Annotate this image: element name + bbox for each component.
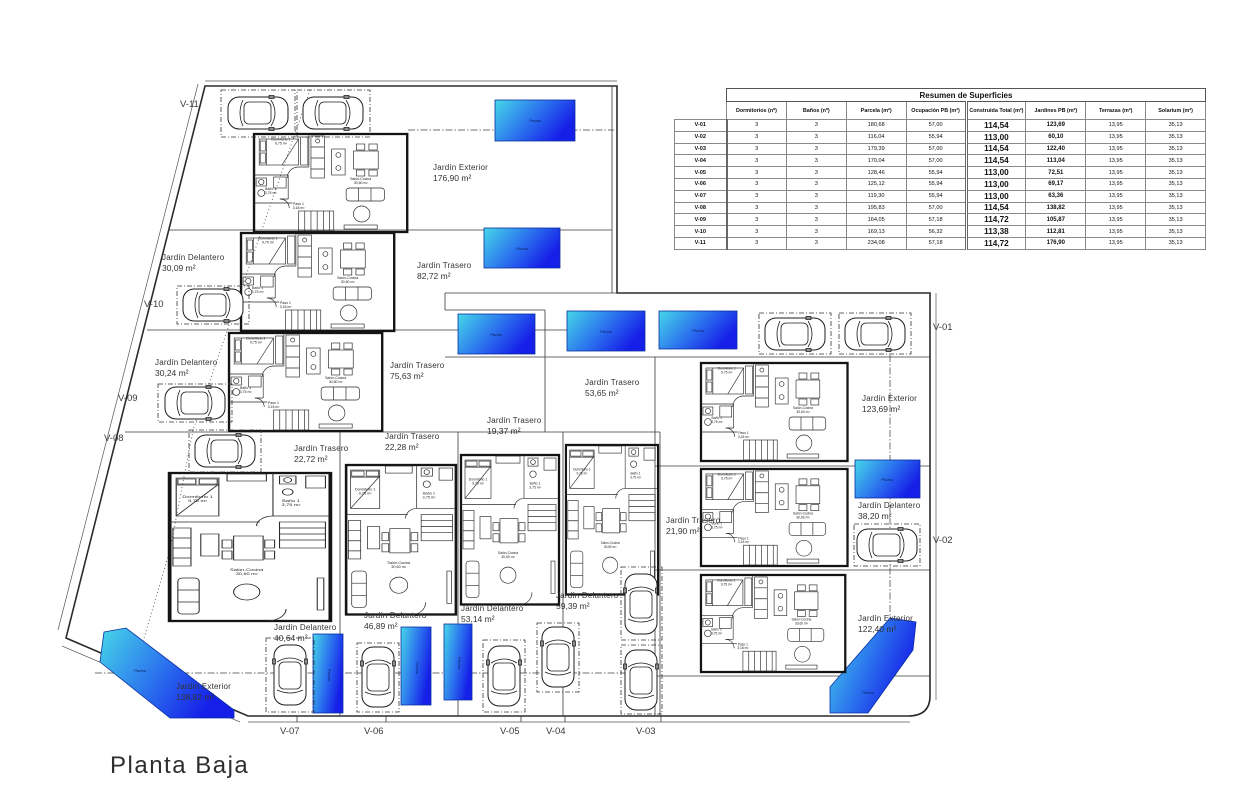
cell-ocupacion: 57,00 <box>906 120 966 132</box>
cell-terrazas: 13,95 <box>1086 143 1146 155</box>
garden-name: Jardín Delantero <box>364 611 427 620</box>
garden-name: Jardín Exterior <box>862 394 917 403</box>
cell-jardines: 176,90 <box>1026 237 1086 249</box>
garden-name: Jardín Delantero <box>461 604 524 613</box>
garden-name: Jardín Trasero <box>417 261 472 270</box>
cell-jardines: 69,17 <box>1026 178 1086 190</box>
cell-unit-id: V-09 <box>675 214 727 226</box>
cell-ocupacion: 55,94 <box>906 178 966 190</box>
garden-area: 75,63 m² <box>390 371 424 381</box>
cell-parcela: 195,83 <box>846 202 906 214</box>
cell-solarium: 35,13 <box>1146 237 1206 249</box>
cell-ocupacion: 57,00 <box>906 143 966 155</box>
garden-name: Jardín Exterior <box>858 614 913 623</box>
table-row: V-04 3 3 170,04 57,00 114,54 113,04 13,9… <box>675 155 1206 167</box>
cell-ocupacion: 56,32 <box>906 226 966 238</box>
pool-label: Piscina <box>516 247 528 251</box>
unit-label-v08: V-08 <box>104 433 124 444</box>
cell-dormitorios: 3 <box>727 214 787 226</box>
pool-label: Piscina <box>881 478 893 482</box>
garden-area: 53,65 m² <box>585 388 619 398</box>
cell-ocupacion: 55,94 <box>906 190 966 202</box>
cell-banos: 3 <box>786 120 846 132</box>
table-corner <box>675 102 727 120</box>
garden-name: Jardín Trasero <box>585 378 640 387</box>
table-row: V-11 3 3 234,08 57,18 114,72 176,90 13,9… <box>675 237 1206 249</box>
unit-label-v07: V-07 <box>280 726 300 737</box>
table-body: V-01 3 3 180,68 57,00 114,54 123,69 13,9… <box>675 120 1206 250</box>
cell-terrazas: 13,95 <box>1086 131 1146 143</box>
table-row: V-08 3 3 195,83 57,00 114,54 138,82 13,9… <box>675 202 1206 214</box>
garden-name: Jardín Trasero <box>294 444 349 453</box>
house-v02 <box>701 469 848 566</box>
unit-label-v04: V-04 <box>546 726 566 737</box>
cell-unit-id: V-02 <box>675 131 727 143</box>
garden-area: 82,72 m² <box>417 271 451 281</box>
cell-ocupacion: 57,00 <box>906 202 966 214</box>
cell-terrazas: 13,95 <box>1086 214 1146 226</box>
cell-jardines: 72,51 <box>1026 167 1086 179</box>
garden-area: 46,89 m² <box>364 621 398 631</box>
pool-label: Piscina <box>134 669 146 673</box>
garden-name: Jardín Delantero <box>162 253 225 262</box>
garden-name: Jardín Delantero <box>155 358 218 367</box>
table-row: V-06 3 3 125,12 55,94 113,00 69,17 13,95… <box>675 178 1206 190</box>
cell-ocupacion: 57,18 <box>906 214 966 226</box>
cell-banos: 3 <box>786 131 846 143</box>
cell-terrazas: 13,95 <box>1086 190 1146 202</box>
cell-solarium: 35,13 <box>1146 167 1206 179</box>
table-row: V-03 3 3 179,39 57,00 114,54 122,40 13,9… <box>675 143 1206 155</box>
col-jardines: Jardines PB (m²) <box>1026 102 1086 120</box>
cell-parcela: 128,46 <box>846 167 906 179</box>
table-row: V-10 3 3 169,13 56,32 113,38 112,81 13,9… <box>675 226 1206 238</box>
cell-banos: 3 <box>786 202 846 214</box>
pool-label: Piscina <box>529 119 541 123</box>
cell-jardines: 113,04 <box>1026 155 1086 167</box>
cell-terrazas: 13,95 <box>1086 120 1146 132</box>
garden-area: 59,39 m² <box>556 601 590 611</box>
floor-plan-page: Dormitorio 1 9,75 m² Baño 1 3,75 m² Paso… <box>0 0 1246 812</box>
cell-banos: 3 <box>786 167 846 179</box>
table-header-row: Dormitorios (nº) Baños (nº) Parcela (m²)… <box>675 102 1206 120</box>
garden-area: 176,90 m² <box>433 173 471 183</box>
house-v11 <box>254 134 407 232</box>
cell-dormitorios: 3 <box>727 120 787 132</box>
cell-unit-id: V-03 <box>675 143 727 155</box>
house-v05 <box>461 455 559 604</box>
garden-area: 53,14 m² <box>461 614 495 624</box>
cell-jardines: 105,87 <box>1026 214 1086 226</box>
page-title: Planta Baja <box>110 752 249 780</box>
cell-unit-id: V-05 <box>675 167 727 179</box>
house-v09 <box>229 333 382 431</box>
cell-ocupacion: 55,94 <box>906 131 966 143</box>
garden-area: 22,72 m² <box>294 454 328 464</box>
col-banos: Baños (nº) <box>786 102 846 120</box>
garden-area: 138,82 m² <box>176 692 214 702</box>
surface-summary-table: Resumen de Superficies Dormitorios (nº) … <box>674 88 1206 250</box>
cell-jardines: 123,69 <box>1026 120 1086 132</box>
cell-parcela: 179,39 <box>846 143 906 155</box>
garden-name: Jardín Trasero <box>385 432 440 441</box>
cell-ocupacion: 55,94 <box>906 167 966 179</box>
col-dormitorios: Dormitorios (nº) <box>727 102 787 120</box>
cell-banos: 3 <box>786 237 846 249</box>
table-corner <box>675 89 727 102</box>
cell-unit-id: V-10 <box>675 226 727 238</box>
cell-jardines: 60,10 <box>1026 131 1086 143</box>
house-v06 <box>346 465 456 614</box>
house-v07 <box>170 473 331 621</box>
cell-construida: 114,72 <box>966 214 1026 226</box>
cell-terrazas: 13,95 <box>1086 178 1146 190</box>
pool-label: Piscina <box>415 662 419 674</box>
pool-label: Piscina <box>457 657 461 669</box>
cell-jardines: 138,82 <box>1026 202 1086 214</box>
cell-parcela: 169,13 <box>846 226 906 238</box>
cell-solarium: 35,13 <box>1146 190 1206 202</box>
cell-terrazas: 13,95 <box>1086 226 1146 238</box>
cell-ocupacion: 57,18 <box>906 237 966 249</box>
cell-dormitorios: 3 <box>727 155 787 167</box>
cell-solarium: 35,13 <box>1146 120 1206 132</box>
cell-dormitorios: 3 <box>727 167 787 179</box>
cell-banos: 3 <box>786 155 846 167</box>
table-row: V-05 3 3 128,46 55,94 113,00 72,51 13,95… <box>675 167 1206 179</box>
col-ocupacion: Ocupación PB (m²) <box>906 102 966 120</box>
cell-unit-id: V-06 <box>675 178 727 190</box>
cell-solarium: 35,13 <box>1146 202 1206 214</box>
col-construida: Construida Total (m²) <box>966 102 1026 120</box>
cell-dormitorios: 3 <box>727 190 787 202</box>
cell-banos: 3 <box>786 190 846 202</box>
cell-parcela: 119,30 <box>846 190 906 202</box>
garden-area: 21,90 m² <box>666 526 700 536</box>
cell-terrazas: 13,95 <box>1086 167 1146 179</box>
house-v03 <box>701 575 845 672</box>
cell-banos: 3 <box>786 226 846 238</box>
cell-jardines: 112,81 <box>1026 226 1086 238</box>
cell-solarium: 35,13 <box>1146 131 1206 143</box>
garden-name: Jardín Delantero <box>858 501 921 510</box>
table-row: V-01 3 3 180,68 57,00 114,54 123,69 13,9… <box>675 120 1206 132</box>
cell-terrazas: 13,95 <box>1086 155 1146 167</box>
cell-dormitorios: 3 <box>727 178 787 190</box>
garden-name: Jardín Exterior <box>433 163 488 172</box>
cell-jardines: 63,36 <box>1026 190 1086 202</box>
pool-label: Piscina <box>327 669 331 681</box>
cell-banos: 3 <box>786 178 846 190</box>
unit-label-v06: V-06 <box>364 726 384 737</box>
unit-label-v09: V-09 <box>118 393 138 404</box>
house-v04 <box>566 445 658 594</box>
pool-label: Piscina <box>600 330 612 334</box>
cell-unit-id: V-08 <box>675 202 727 214</box>
garden-name: Jardín Trasero <box>666 516 721 525</box>
cell-construida: 114,54 <box>966 155 1026 167</box>
garden-area: 30,24 m² <box>155 368 189 378</box>
cell-solarium: 35,13 <box>1146 143 1206 155</box>
cell-jardines: 122,40 <box>1026 143 1086 155</box>
garden-name: Jardín Delantero <box>274 623 337 632</box>
unit-label-v02: V-02 <box>933 535 953 546</box>
cell-banos: 3 <box>786 214 846 226</box>
cell-terrazas: 13,95 <box>1086 237 1146 249</box>
cell-dormitorios: 3 <box>727 131 787 143</box>
cell-construida: 113,00 <box>966 190 1026 202</box>
cell-parcela: 164,05 <box>846 214 906 226</box>
garden-area: 19,37 m² <box>487 426 521 436</box>
cell-unit-id: V-11 <box>675 237 727 249</box>
garden-name: Jardín Delantero <box>556 591 619 600</box>
pool-label: Piscina <box>490 333 502 337</box>
unit-label-v05: V-05 <box>500 726 520 737</box>
garden-name: Jardín Trasero <box>390 361 445 370</box>
pool-label: Piscina <box>692 329 704 333</box>
cell-dormitorios: 3 <box>727 226 787 238</box>
col-solarium: Solarium (m²) <box>1146 102 1206 120</box>
cell-ocupacion: 57,00 <box>906 155 966 167</box>
cell-construida: 114,54 <box>966 143 1026 155</box>
pool-label: Piscina <box>862 691 874 695</box>
cell-solarium: 35,13 <box>1146 226 1206 238</box>
cell-dormitorios: 3 <box>727 143 787 155</box>
cell-unit-id: V-01 <box>675 120 727 132</box>
garden-area: 122,40 m² <box>858 624 896 634</box>
house-v10 <box>241 233 394 331</box>
cell-parcela: 234,08 <box>846 237 906 249</box>
unit-label-v11: V-11 <box>180 99 199 110</box>
garden-area: 40,64 m² <box>274 633 308 643</box>
table-row: V-09 3 3 164,05 57,18 114,72 105,87 13,9… <box>675 214 1206 226</box>
cell-parcela: 170,04 <box>846 155 906 167</box>
cell-construida: 113,00 <box>966 178 1026 190</box>
cell-construida: 114,72 <box>966 237 1026 249</box>
garden-area: 123,69 m² <box>862 404 900 414</box>
cell-solarium: 35,13 <box>1146 214 1206 226</box>
unit-label-v03: V-03 <box>636 726 656 737</box>
cell-solarium: 35,13 <box>1146 178 1206 190</box>
cell-parcela: 125,12 <box>846 178 906 190</box>
col-terrazas: Terrazas (m²) <box>1086 102 1146 120</box>
unit-label-v10: V-10 <box>144 299 164 310</box>
cell-solarium: 35,13 <box>1146 155 1206 167</box>
cell-dormitorios: 3 <box>727 237 787 249</box>
unit-label-v01: V-01 <box>933 322 953 333</box>
cell-construida: 114,54 <box>966 202 1026 214</box>
col-parcela: Parcela (m²) <box>846 102 906 120</box>
cell-unit-id: V-07 <box>675 190 727 202</box>
garden-name: Jardín Trasero <box>487 416 542 425</box>
cell-dormitorios: 3 <box>727 202 787 214</box>
cell-construida: 114,54 <box>966 120 1026 132</box>
table-title-row: Resumen de Superficies <box>675 89 1206 102</box>
table-row: V-02 3 3 116,04 55,94 113,00 60,10 13,95… <box>675 131 1206 143</box>
garden-area: 38,20 m² <box>858 511 892 521</box>
cell-construida: 113,00 <box>966 167 1026 179</box>
cell-unit-id: V-04 <box>675 155 727 167</box>
cell-terrazas: 13,95 <box>1086 202 1146 214</box>
cell-parcela: 116,04 <box>846 131 906 143</box>
house-v01 <box>701 363 848 461</box>
cell-banos: 3 <box>786 143 846 155</box>
cell-parcela: 180,68 <box>846 120 906 132</box>
table-row: V-07 3 3 119,30 55,94 113,00 63,36 13,95… <box>675 190 1206 202</box>
cell-construida: 113,38 <box>966 226 1026 238</box>
table-title: Resumen de Superficies <box>727 89 1206 102</box>
garden-name: Jardín Exterior <box>176 682 231 691</box>
garden-area: 22,28 m² <box>385 442 419 452</box>
cell-construida: 113,00 <box>966 131 1026 143</box>
garden-area: 30,09 m² <box>162 263 196 273</box>
